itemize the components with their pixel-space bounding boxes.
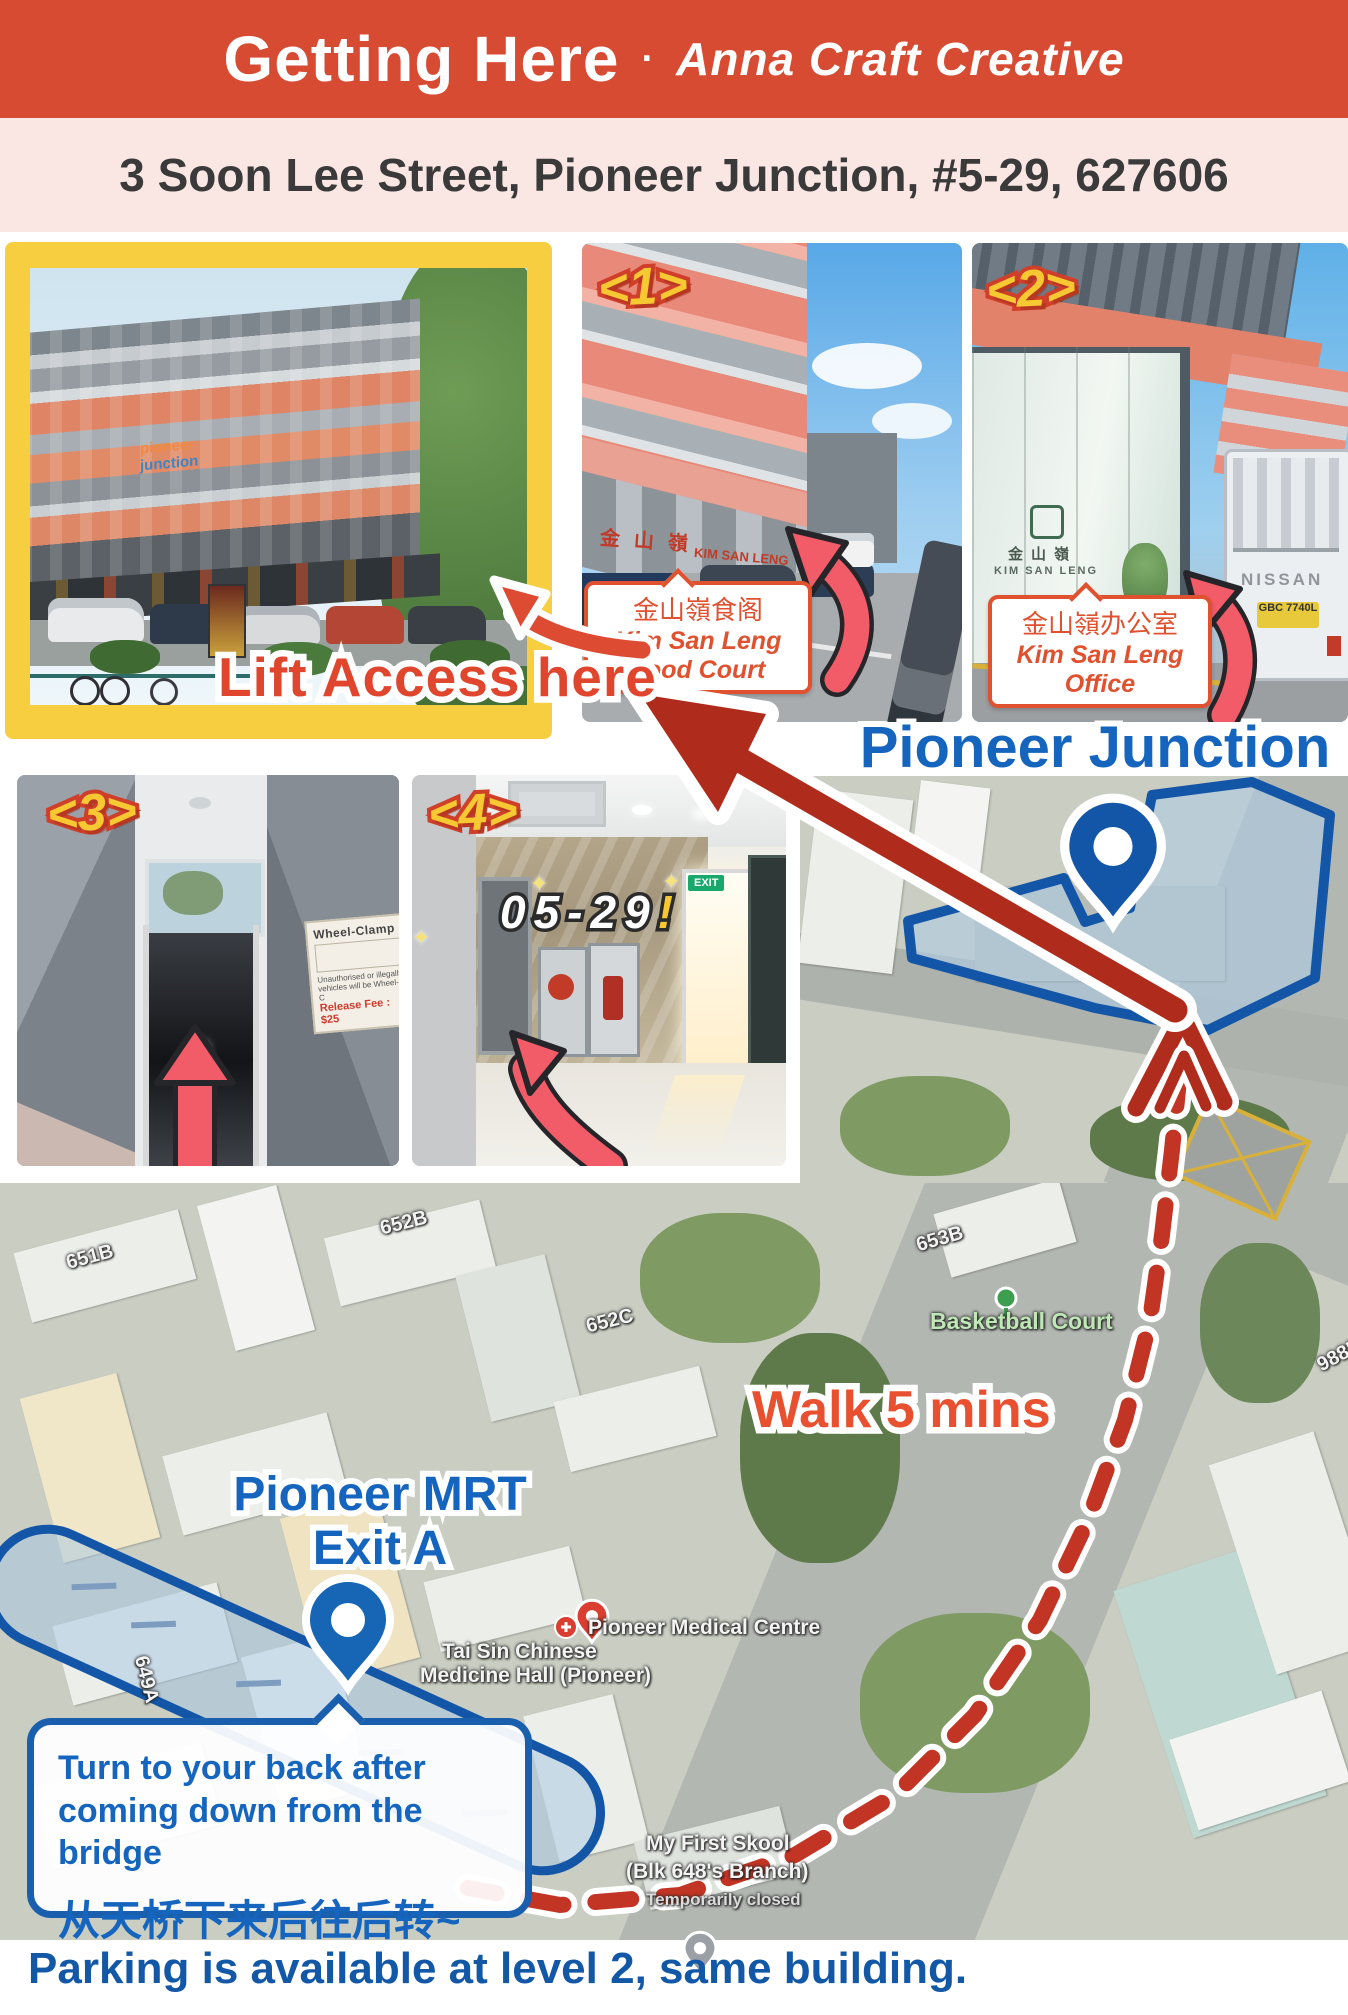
photo-4-lift-lobby: EXIT 05-29! ✦ ✦ ✦ <4> [412, 775, 786, 1166]
map-building-block [975, 886, 1225, 981]
mrt-label-line2: Exit A [220, 1522, 540, 1576]
truck-plate: GBC 7740L [1257, 602, 1319, 628]
car [240, 606, 320, 644]
photo-4-badge: <4> [426, 781, 519, 846]
office-logo-zh: 金山嶺 [1008, 543, 1077, 564]
dark-corridor [149, 933, 253, 1166]
title-separator: · [641, 38, 654, 81]
unit-number-text: 05-29 [500, 886, 658, 938]
caption-zh: 金山嶺办公室 [1002, 604, 1198, 641]
brand-name: Anna Craft Creative [676, 32, 1124, 86]
map-building-block [554, 1366, 717, 1472]
truck-cargo-frame [1233, 458, 1339, 552]
page-title: Getting Here [223, 22, 619, 96]
map-green-strip [860, 1613, 1090, 1793]
map-label-skool-2: (Blk 648's Branch) [626, 1860, 808, 1884]
sparkle-icon: ✦ [530, 871, 548, 897]
ceiling-light [189, 797, 211, 809]
bicycle-wheel [100, 676, 130, 705]
unit-number: 05-29! [500, 885, 681, 939]
map-upper-right [800, 776, 1348, 1183]
bubble-line2: coming down from the bridge [58, 1790, 501, 1875]
notice-diagram [314, 937, 399, 972]
door-frame [253, 925, 259, 1166]
logo-mark [1030, 505, 1064, 539]
caption-en: Kim San Leng Office [1002, 641, 1198, 699]
map-green-strip [740, 1333, 900, 1563]
map-label-taisin-2: Medicine Hall (Pioneer) [420, 1664, 651, 1688]
map-green-strip [640, 1213, 820, 1343]
exit-sign-text: EXIT [694, 877, 718, 889]
map-label-taisin-1: Tai Sin Chinese [442, 1640, 597, 1664]
address-bar: 3 Soon Lee Street, Pioneer Junction, #5-… [0, 118, 1348, 232]
photo-3-badge: <3> [45, 781, 138, 846]
pioneer-junction-label: Pioneer Junction [850, 714, 1340, 781]
wheel-clamp-notice: Wheel-Clamp Unauthorised or illegally ve… [304, 913, 399, 1034]
map-building-block [523, 1694, 649, 1862]
map-building-block [800, 789, 913, 974]
fire-extinguisher [603, 976, 623, 1020]
car [408, 606, 486, 644]
car [48, 598, 144, 642]
tree-reflection [163, 871, 223, 915]
map-label-basketball: Basketball Court [930, 1308, 1113, 1335]
fire-hose-cabinet [538, 947, 588, 1057]
bright-doorway [682, 869, 752, 1077]
door-frame [143, 925, 149, 1166]
corridor-end-light [193, 1043, 207, 1065]
truck-brand: NISSAN [1241, 570, 1323, 590]
getting-here-poster: Getting Here · Anna Craft Creative 3 Soo… [0, 0, 1348, 2015]
exit-sign: EXIT [688, 875, 724, 891]
main-photo-building: pioneer junction [30, 268, 527, 705]
map-label-skool-3: Temporarily closed [646, 1890, 801, 1910]
caption-zh: 金山嶺食阁 [598, 590, 798, 627]
caption-office: 金山嶺办公室 Kim San Leng Office [988, 595, 1212, 708]
map-building-block [197, 1185, 315, 1351]
map-green-strip [1200, 1243, 1320, 1403]
transom-window [145, 859, 265, 937]
address-text: 3 Soon Lee Street, Pioneer Junction, #5-… [119, 148, 1229, 202]
corridor-opening [135, 775, 267, 1166]
bubble-line-zh: 从天桥下来后往后转~ [58, 1887, 501, 1948]
bicycle-wheel [150, 678, 178, 705]
map-trees [1090, 1096, 1290, 1181]
white-van [818, 533, 874, 567]
cloud [812, 343, 922, 389]
photo-2-office: 金山嶺 KIM SAN LENG NISSAN GBC 7740L 金山嶺办公室… [972, 243, 1348, 722]
parking-note: Parking is available at level 2, same bu… [28, 1944, 967, 1994]
ceiling-light [632, 805, 652, 815]
truck-lights [1327, 636, 1341, 656]
bicycle-wheel [70, 676, 100, 705]
map-building-block [455, 1254, 581, 1422]
walk-5-mins-label: Walk 5 mins [752, 1380, 1051, 1440]
photo-1-badge: <1> [596, 255, 689, 320]
map-building-block [20, 1373, 161, 1563]
mrt-label-line1: Pioneer MRT [220, 1468, 540, 1522]
sparkle-icon: ✦ [662, 869, 680, 895]
office-logo-en: KIM SAN LENG [994, 565, 1098, 577]
car [326, 606, 404, 644]
map-trees [840, 1076, 1010, 1176]
pioneer-sign: pioneer junction [140, 435, 198, 474]
bubble-line1: Turn to your back after [58, 1747, 501, 1790]
bush [90, 640, 160, 674]
lift-access-label: Lift Access here [218, 645, 657, 709]
photo-2-badge: <2> [984, 257, 1077, 322]
fire-hose-reel [548, 974, 574, 1000]
map-building-block [14, 1209, 197, 1323]
header-banner: Getting Here · Anna Craft Creative [0, 0, 1348, 118]
truck-lights [1233, 636, 1247, 656]
direction-note-bubble: Turn to your back after coming down from… [27, 1718, 532, 1918]
fire-extinguisher-cabinet [588, 943, 640, 1057]
pioneer-mrt-label: Pioneer MRT Exit A [220, 1468, 540, 1576]
dark-notice-board [748, 855, 786, 1081]
map-building-block [909, 780, 990, 883]
ac-vent [508, 781, 606, 827]
truck: NISSAN GBC 7740L [1224, 449, 1348, 681]
map-label-skool-1: My First Skool [646, 1832, 790, 1856]
sparkle-icon: ✦ [412, 925, 430, 951]
photo-3-corridor: Wheel-Clamp Unauthorised or illegally ve… [17, 775, 399, 1166]
map-label-medical: Pioneer Medical Centre [588, 1616, 820, 1640]
truck-plate-text: GBC 7740L [1259, 602, 1318, 614]
